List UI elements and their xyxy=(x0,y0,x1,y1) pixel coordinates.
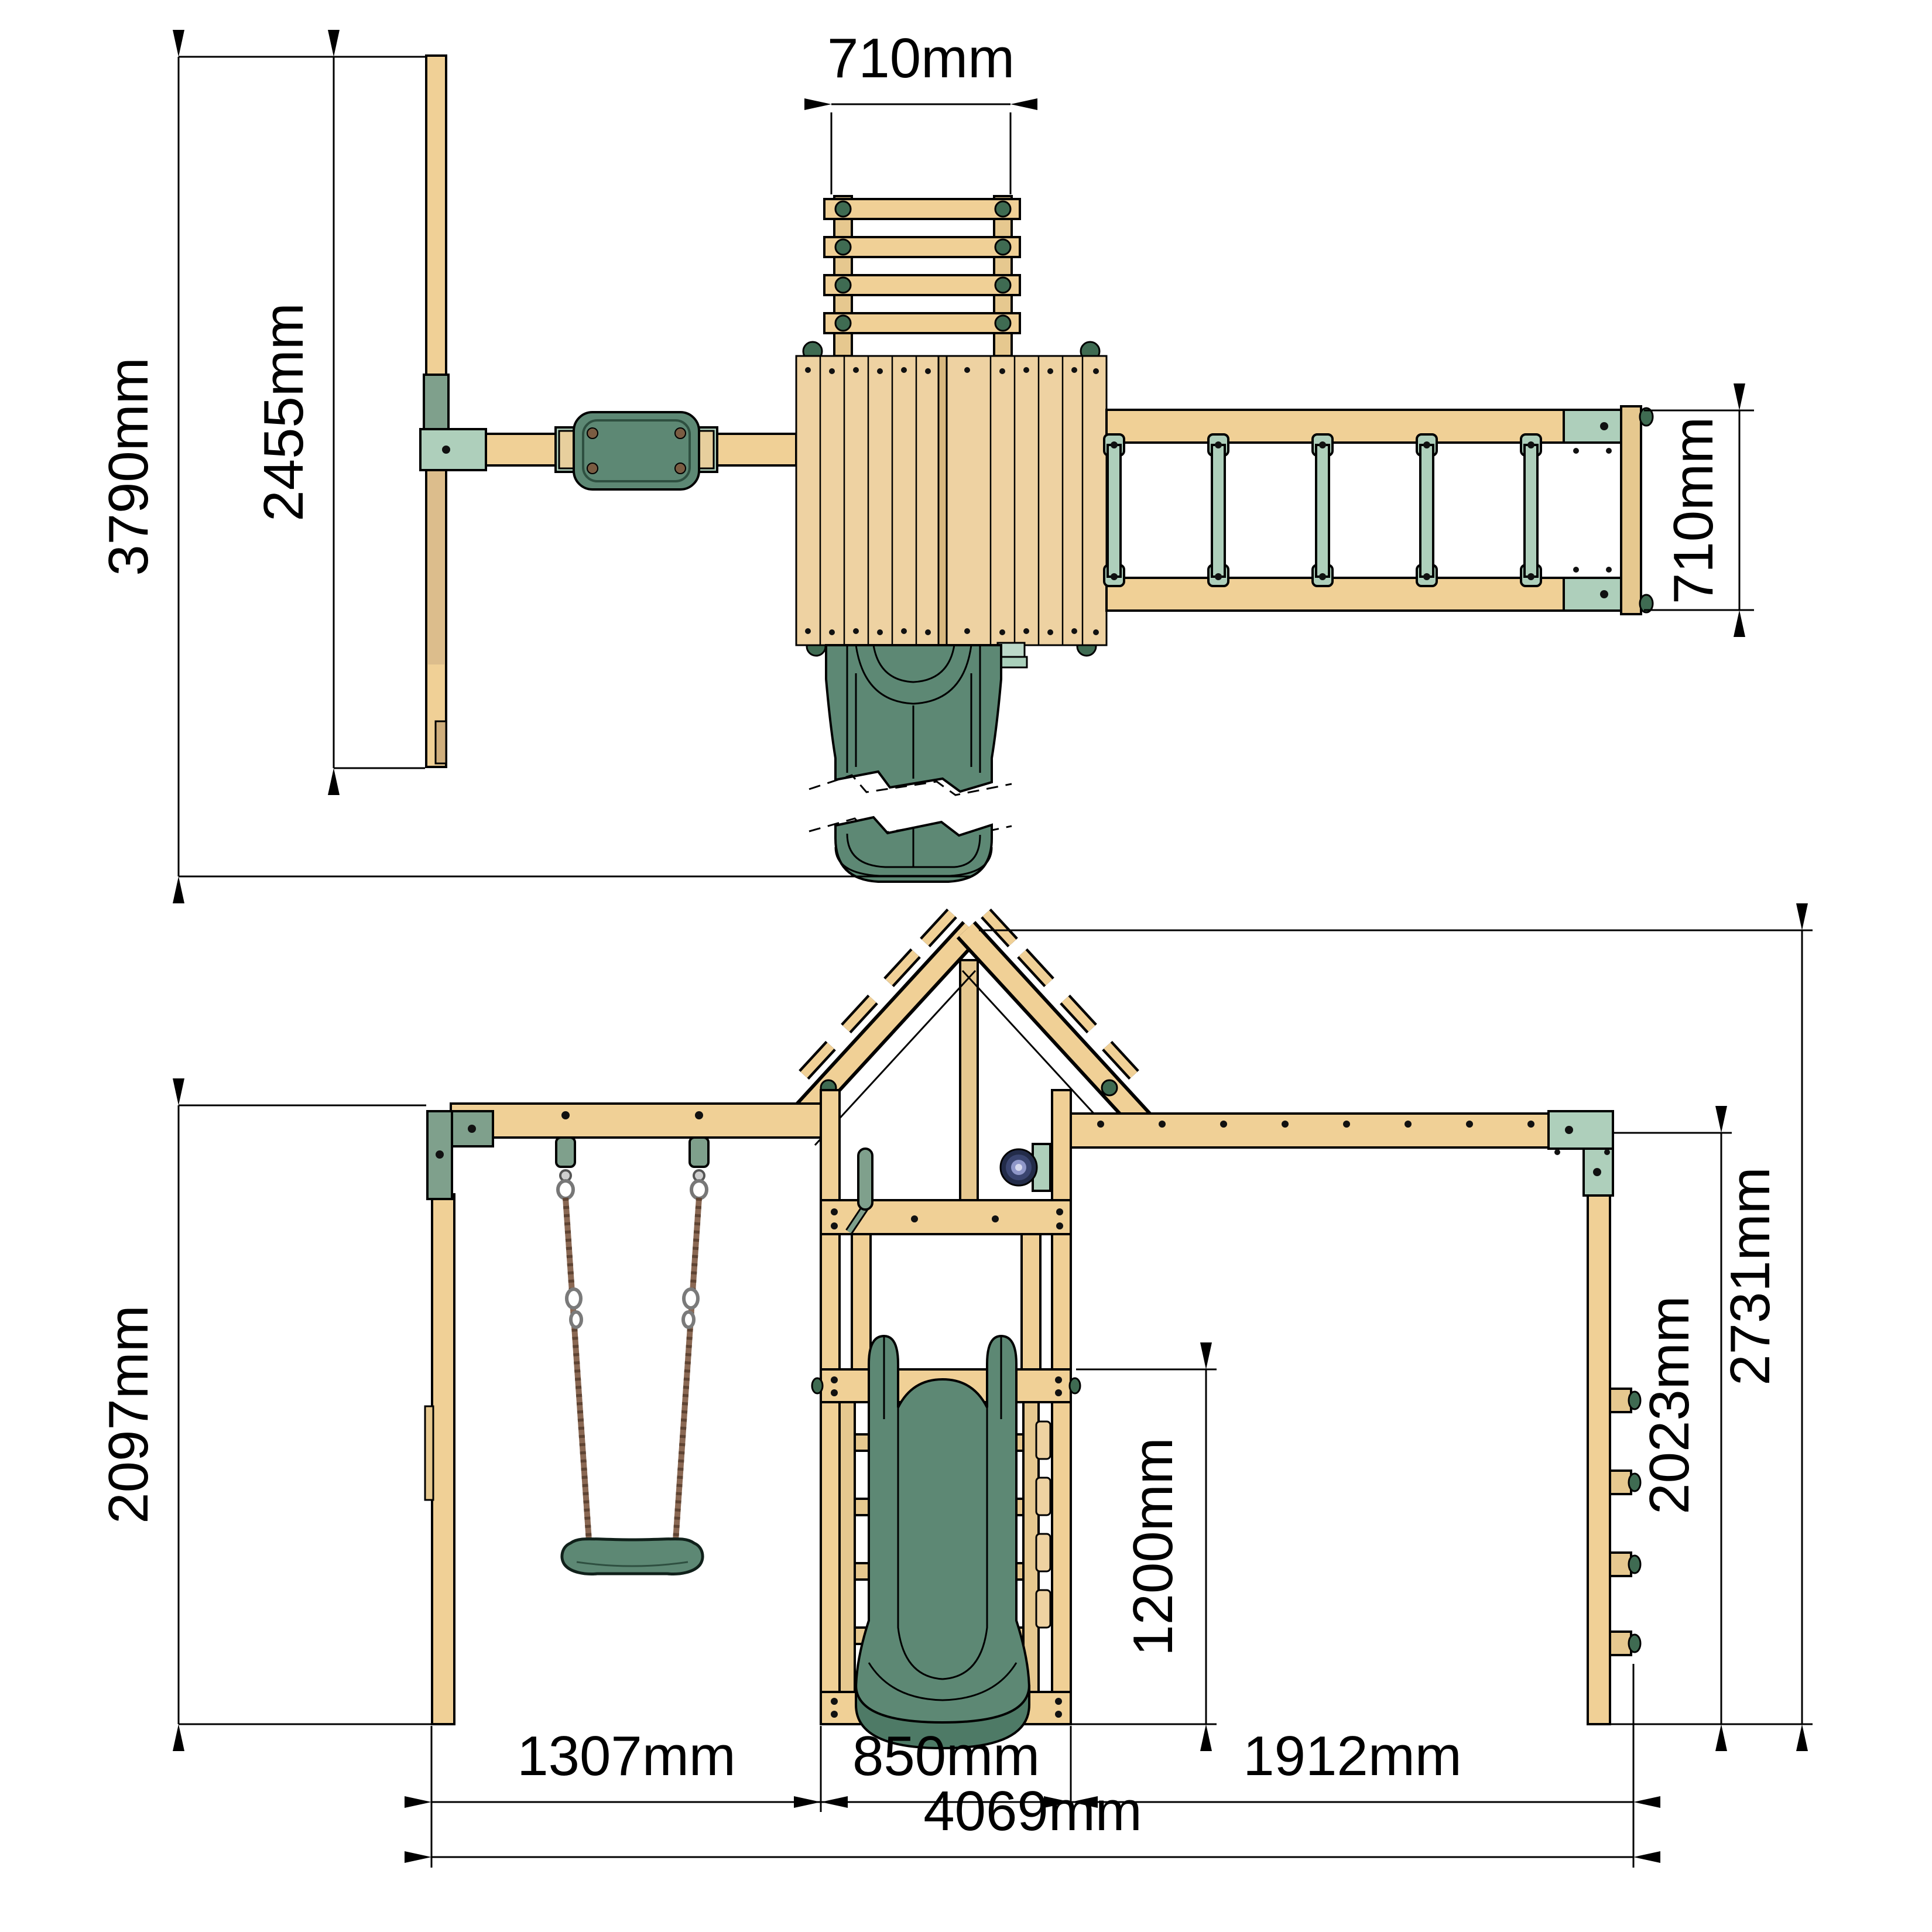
swing-frame-plank-shade xyxy=(428,468,444,664)
ladder-rung xyxy=(824,275,1020,295)
lower-rail-left xyxy=(840,1402,855,1692)
tower-back-post xyxy=(960,960,978,1201)
dim-label-ladder-width: 710mm xyxy=(827,27,1015,90)
deck-center-gap xyxy=(938,356,947,645)
monkey-end-rail xyxy=(1621,406,1641,614)
swing-seat xyxy=(562,1539,703,1574)
swing-seat-plan xyxy=(574,412,699,489)
drawing-canvas: 710mm 3790mm 2455mm 710mm xyxy=(0,0,1932,1932)
bracket-bolt xyxy=(442,446,450,454)
swing-post-side-board xyxy=(425,1406,433,1500)
monkey-corner-bracket-horizontal xyxy=(1549,1111,1613,1149)
swing-beam-bracket-plan xyxy=(420,429,486,470)
slide-front xyxy=(856,1336,1029,1748)
rope-terminal xyxy=(675,463,686,474)
platform-deck-plan xyxy=(796,342,1107,656)
monkey-bar-beam xyxy=(1071,1114,1588,1147)
tower-inner-post-left xyxy=(852,1234,871,1369)
dim-label-swing-beam-height: 2097mm xyxy=(97,1305,160,1524)
monkey-corner-bracket-plan xyxy=(1564,410,1621,443)
monkey-rail-far xyxy=(1107,578,1621,611)
dim-label-monkey-bar-bay-width: 1912mm xyxy=(1243,1725,1462,1787)
tower-post-left xyxy=(821,1090,840,1724)
access-ladder-plan xyxy=(824,196,1020,356)
swing-post xyxy=(432,1194,454,1724)
tower-post-right xyxy=(1052,1090,1071,1724)
dim-label-total-depth: 3790mm xyxy=(97,357,160,576)
swing-frame-foot-plate xyxy=(436,721,446,763)
dim-label-swing-bay-width: 1307mm xyxy=(517,1725,736,1787)
rope-terminal xyxy=(675,428,686,439)
ladder-rung xyxy=(824,313,1020,333)
tower-inner-post-right xyxy=(1022,1234,1040,1369)
swing-frame-plank-plan xyxy=(424,56,448,767)
dim-label-swing-frame-depth: 2455mm xyxy=(252,303,315,522)
ladder-rung xyxy=(824,237,1020,257)
slide-body xyxy=(856,1336,1029,1727)
monkey-corner-bracket-plan xyxy=(1564,578,1621,611)
rope-terminal xyxy=(587,428,598,439)
playset-dimension-drawing: 710mm 3790mm 2455mm 710mm xyxy=(0,0,1932,1932)
swing-beam xyxy=(451,1104,821,1138)
dim-label-monkey-bar-post-height: 2023mm xyxy=(1638,1296,1701,1515)
ladder-rung xyxy=(824,199,1020,219)
dim-label-overall-height: 2731mm xyxy=(1719,1167,1782,1386)
rope-terminal xyxy=(587,463,598,474)
monkey-bar-post xyxy=(1588,1168,1610,1724)
deck-surface xyxy=(796,356,1107,645)
dim-label-platform-height: 1200mm xyxy=(1122,1437,1184,1656)
dim-label-tower-width: 850mm xyxy=(852,1725,1040,1787)
monkey-rail-near xyxy=(1107,410,1621,443)
dim-label-overall-width: 4069mm xyxy=(923,1780,1142,1842)
dim-label-monkey-bar-width: 710mm xyxy=(1662,417,1725,604)
